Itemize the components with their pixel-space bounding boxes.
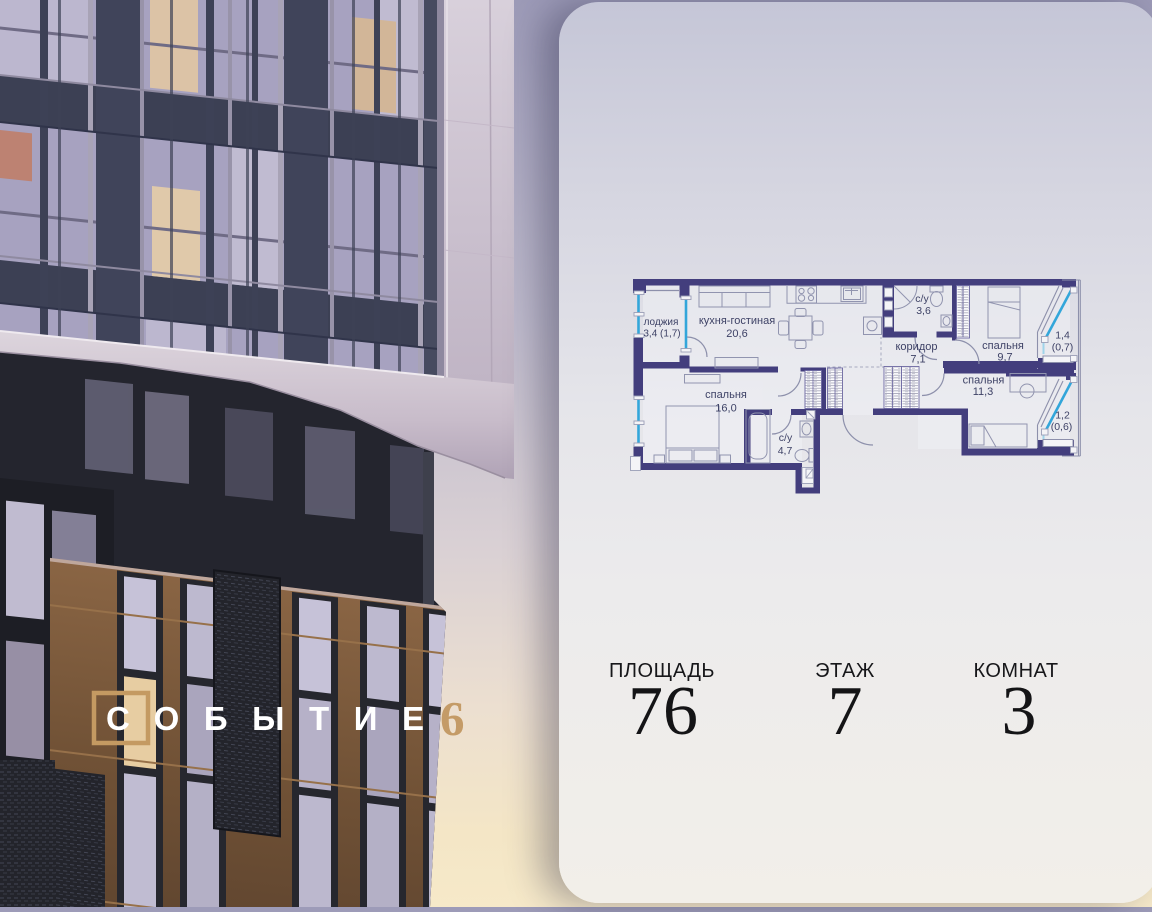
svg-text:лоджия: лоджия	[644, 317, 679, 328]
svg-text:с/у: с/у	[915, 293, 929, 305]
svg-text:спальня: спальня	[982, 340, 1024, 352]
svg-text:коридор: коридор	[896, 341, 938, 353]
svg-text:3,4 (1,7): 3,4 (1,7)	[643, 329, 680, 340]
svg-text:(0,7): (0,7)	[1052, 342, 1074, 354]
svg-text:3,6: 3,6	[916, 305, 931, 317]
svg-text:16,0: 16,0	[715, 403, 736, 415]
svg-text:1,2: 1,2	[1055, 410, 1070, 422]
svg-text:11,3: 11,3	[973, 386, 994, 398]
svg-text:7,1: 7,1	[910, 354, 925, 366]
svg-text:(0,6): (0,6)	[1051, 421, 1073, 433]
svg-text:9,7: 9,7	[997, 352, 1012, 364]
svg-text:кухня-гостиная: кухня-гостиная	[699, 315, 775, 327]
svg-text:20,6: 20,6	[726, 328, 747, 340]
svg-text:с/у: с/у	[779, 432, 793, 444]
svg-text:спальня: спальня	[963, 375, 1005, 387]
svg-text:спальня: спальня	[705, 389, 747, 401]
svg-text:1,4: 1,4	[1055, 330, 1070, 342]
svg-text:4,7: 4,7	[778, 445, 793, 457]
